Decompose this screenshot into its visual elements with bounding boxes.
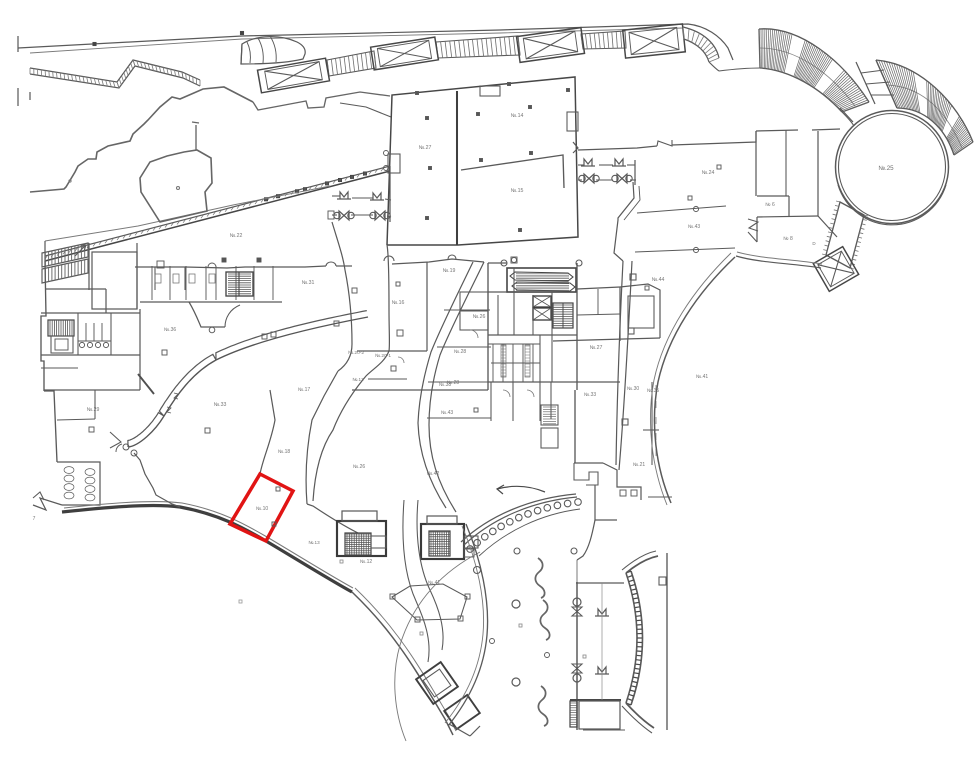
svg-text:№.33: №.33 xyxy=(584,392,597,398)
svg-text:№.25: №.25 xyxy=(878,165,894,172)
svg-text:№.30: №.30 xyxy=(627,386,640,392)
svg-text:№.33: №.33 xyxy=(214,402,227,408)
svg-text:№.38: №.38 xyxy=(439,382,452,388)
svg-text:№.10: №.10 xyxy=(256,506,269,512)
svg-text:№.21: №.21 xyxy=(633,462,646,468)
svg-text:№ 8: № 8 xyxy=(783,236,793,242)
svg-text:№.22: №.22 xyxy=(230,233,243,239)
svg-text:№.19: №.19 xyxy=(443,268,456,274)
svg-text:№.20-2: №.20-2 xyxy=(348,350,364,356)
svg-text:№.26: №.26 xyxy=(353,464,366,470)
svg-text:№.44: №.44 xyxy=(652,277,665,283)
svg-text:№.41: №.41 xyxy=(696,374,709,380)
svg-text:№.18: №.18 xyxy=(278,449,291,455)
svg-text:№.24: №.24 xyxy=(702,170,715,176)
svg-text:№.27: №.27 xyxy=(590,345,603,351)
svg-text:№.20-1: №.20-1 xyxy=(375,353,391,359)
svg-text:№.13: №.13 xyxy=(352,377,364,382)
svg-text:№ 6: № 6 xyxy=(765,202,775,208)
svg-text:№.29: №.29 xyxy=(87,407,100,413)
svg-text:№.16: №.16 xyxy=(392,300,405,306)
svg-text:7: 7 xyxy=(33,516,36,522)
svg-text:№.35: №.35 xyxy=(647,388,660,394)
svg-text:№.17: №.17 xyxy=(298,387,311,393)
svg-text:№.27: №.27 xyxy=(419,145,432,151)
svg-text:№.28: №.28 xyxy=(454,349,467,355)
svg-text:№.15: №.15 xyxy=(511,188,524,194)
svg-text:№.31: №.31 xyxy=(302,280,315,286)
svg-text:№.42: №.42 xyxy=(427,471,440,477)
svg-text:№.26: №.26 xyxy=(473,314,486,320)
svg-text:№.13: №.13 xyxy=(308,540,320,545)
svg-text:№.12: №.12 xyxy=(360,559,373,565)
svg-text:№.36: №.36 xyxy=(164,327,177,333)
svg-text:№.14: №.14 xyxy=(511,113,524,119)
svg-text:№.43: №.43 xyxy=(688,224,701,230)
svg-text:№.43: №.43 xyxy=(441,410,454,416)
